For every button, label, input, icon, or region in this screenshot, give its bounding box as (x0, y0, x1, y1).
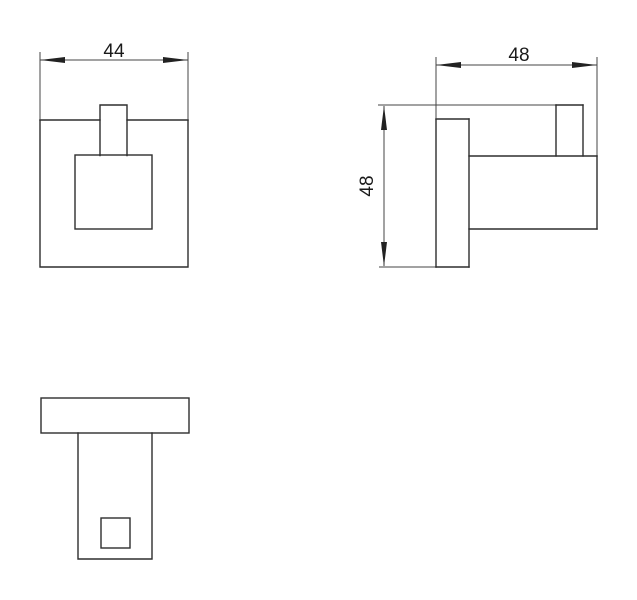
front-hook-knob (75, 155, 152, 229)
arrow-right-icon (572, 62, 597, 68)
side-view: 48 48 (357, 45, 597, 267)
arrow-left-icon (436, 62, 461, 68)
bottom-tip-square (101, 518, 130, 548)
front-width-dimension: 44 (40, 41, 188, 119)
arrow-down-icon (381, 242, 387, 267)
arrow-up-icon (381, 106, 387, 131)
front-view: 44 (40, 41, 188, 267)
front-width-dim-label: 44 (103, 41, 125, 62)
arrow-left-icon (40, 57, 65, 63)
technical-drawing-canvas: 44 48 48 (0, 0, 637, 600)
arrow-right-icon (163, 57, 188, 63)
bottom-plate-slab (41, 398, 189, 433)
side-depth-dimension: 48 (436, 45, 597, 156)
side-height-dimension: 48 (357, 105, 556, 267)
front-wall-plate (40, 120, 188, 267)
side-hook-arm (469, 105, 597, 229)
side-wall-plate (436, 119, 469, 267)
front-plate-outline (40, 120, 188, 267)
side-height-dim-label: 48 (357, 175, 378, 196)
front-hook-stem (100, 105, 127, 156)
bottom-view (41, 398, 189, 559)
side-depth-dim-label: 48 (508, 45, 529, 66)
bottom-hook-arm (78, 433, 152, 559)
